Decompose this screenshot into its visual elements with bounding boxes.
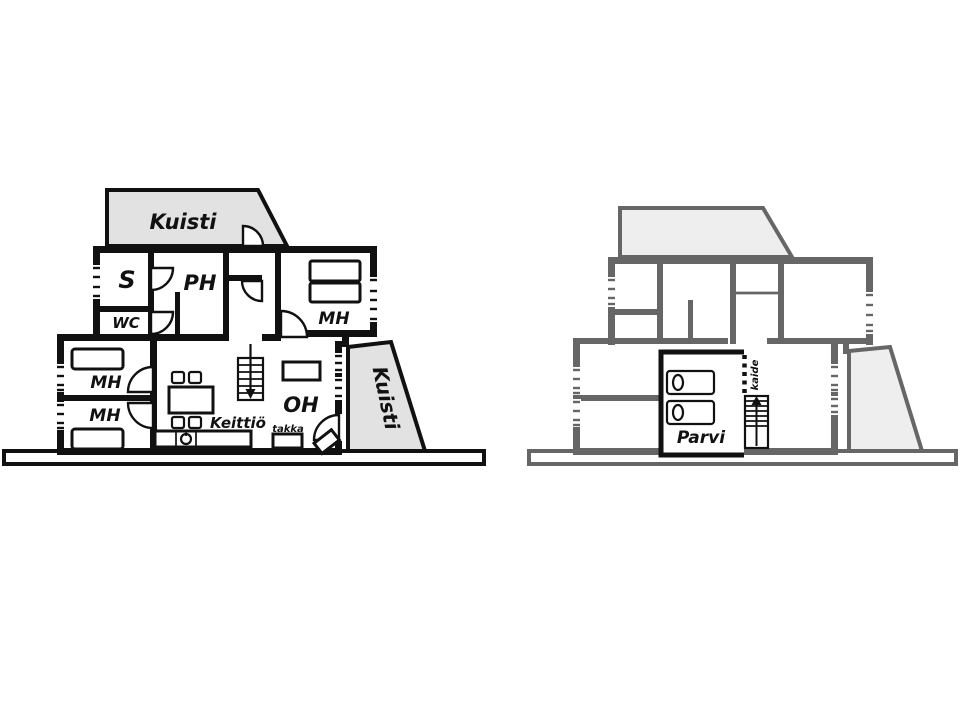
sofa-table [283,362,320,380]
window-upper-left [607,277,616,307]
window-sauna [92,265,101,299]
chair [172,372,184,383]
wall-bedrooms-divider [64,395,150,401]
bed [72,429,123,449]
label-sauna: S [118,266,135,294]
window-living-2 [334,377,343,400]
label-washroom: PH [184,271,217,295]
label-bedroom-low: MH [89,406,120,426]
label-wc: WC [112,314,140,332]
floor-plan-page: Kuisti S WC PH MH MH MH OH Keittiö takka… [0,0,960,720]
pillow-icon [673,375,683,390]
wall-ph-right [223,252,229,341]
label-living-room: OH [283,393,319,417]
door-arc-wc [151,312,173,334]
bed [72,349,123,369]
window-living-1 [334,353,343,373]
chair [189,417,201,428]
bed [310,261,360,281]
label-bedroom-mid: MH [90,373,121,393]
label-railing: kaide [750,359,761,390]
fireplace [273,434,302,448]
door-arc-sauna [151,268,173,290]
floor-plan-drawing: Kuisti S WC PH MH MH MH OH Keittiö takka… [0,0,960,720]
kitchen-counter [155,431,251,447]
window-bedroom-mid [56,364,65,392]
door-arc-vestibule [242,281,262,301]
chair [172,417,184,428]
window-bedroom-top [369,277,378,322]
label-kitchen: Keittiö [210,414,266,432]
dining-table-set [169,372,213,428]
bed [310,283,360,302]
label-fireplace: takka [272,424,304,435]
window-lower-right-1 [830,364,839,392]
wall-sauna-wc-divider [99,306,154,312]
door-arc-bedroom-mid [128,367,153,392]
window-lower-right-2 [830,396,839,415]
staircase-up [745,396,768,448]
right-floor-plan: Parvi kaide [529,208,956,464]
loft-bed [667,371,714,394]
wall-ph-stub [175,292,180,341]
window-bedroom-low [56,402,65,430]
pillow-icon [673,405,683,420]
loft-bed [667,401,714,424]
label-bedroom-top: MH [318,309,349,329]
label-porch-top: Kuisti [149,210,217,234]
porch-right-upper [849,347,922,451]
staircase-down [238,344,263,400]
window-lower-left-2 [572,399,581,427]
door-arc-bedroom-top [281,311,307,337]
window-lower-left-1 [572,367,581,395]
left-floor-plan: Kuisti S WC PH MH MH MH OH Keittiö takka… [4,190,484,464]
porch-top-upper [620,208,792,257]
chair [189,372,201,383]
door-arc-bedroom-low [128,403,153,428]
window-upper-right [865,292,874,334]
label-loft: Parvi [677,428,726,448]
